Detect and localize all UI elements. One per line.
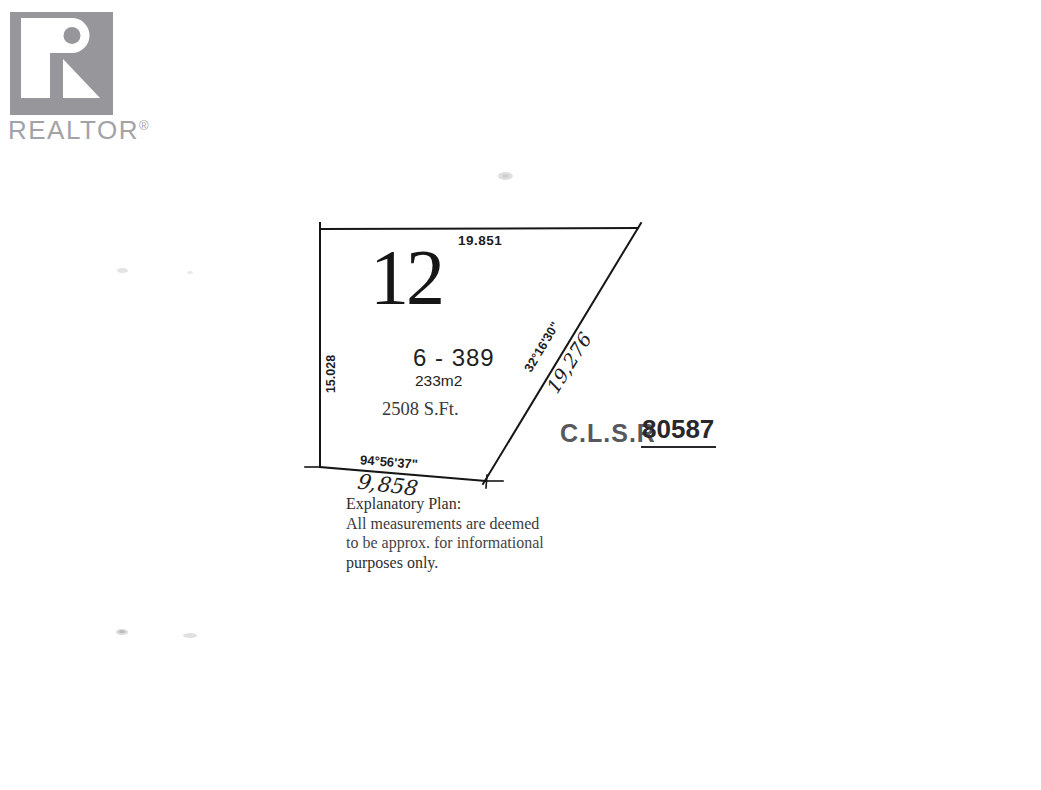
disclaimer-line: to be approx. for informational xyxy=(346,533,544,553)
lot-number: 12 xyxy=(370,243,442,312)
disclaimer-text: Explanatory Plan: All measurements are d… xyxy=(346,494,544,572)
lot-edge-top xyxy=(320,228,638,229)
dimension-top: 19.851 xyxy=(458,233,502,248)
clsr-number: 80587 xyxy=(641,414,716,448)
scan-speck xyxy=(187,271,193,274)
disclaimer-line: All measurements are deemed xyxy=(346,514,544,534)
scan-speck xyxy=(117,268,128,273)
lot-plan-page: REALTOR® 19.851 12 6 - 389 233m2 2508 S.… xyxy=(0,0,1041,790)
area-imperial: 2508 S.Ft. xyxy=(382,399,459,420)
corner-cross-bottom-right xyxy=(486,475,487,488)
scan-speck xyxy=(183,633,197,638)
dimension-left: 15.028 xyxy=(324,355,338,393)
plan-number: 6 - 389 xyxy=(413,344,495,372)
disclaimer-line: Explanatory Plan: xyxy=(346,494,544,514)
scan-speck xyxy=(502,174,509,178)
lot-plan-drawing xyxy=(0,0,1041,790)
disclaimer-line: purposes only. xyxy=(346,553,544,573)
area-metric: 233m2 xyxy=(415,372,462,390)
scan-speck xyxy=(119,630,125,633)
